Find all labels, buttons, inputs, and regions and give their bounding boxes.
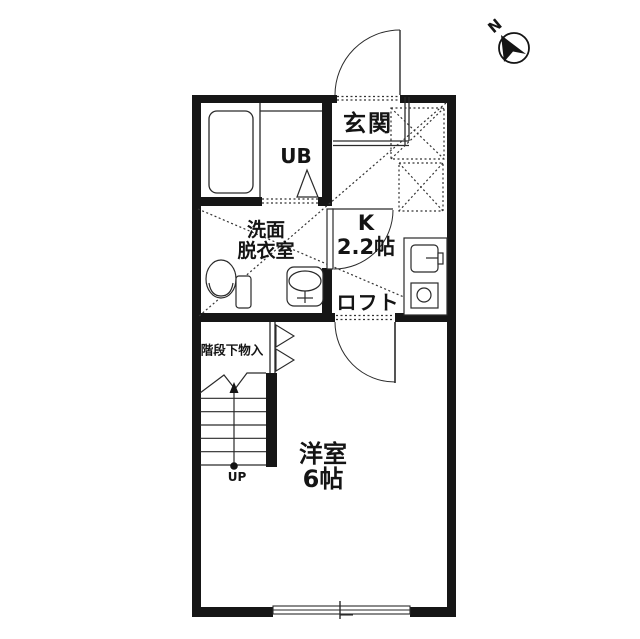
kitchen-size-label: 2.2帖 [337, 235, 395, 259]
wall-ub-bottom [192, 197, 262, 206]
washroom-label-line1: 洗面 [237, 220, 294, 241]
loft-label: ロフト [337, 287, 400, 316]
wall-right [447, 95, 456, 617]
kitchen-label: K 2.2帖 [337, 211, 395, 259]
western-room-size: 6帖 [299, 467, 347, 492]
entrance-threshold [337, 97, 400, 101]
stairs-up-label: UP [228, 470, 247, 484]
stairs [200, 373, 266, 470]
shoe-cabinet-lower [399, 163, 443, 211]
ub-threshold [262, 199, 318, 203]
western-room-name: 洋室 [299, 442, 347, 467]
wall-bottom-left [192, 607, 273, 617]
entrance-label: 玄関 [343, 104, 393, 138]
toilet [206, 260, 251, 308]
closet-door-frame [270, 322, 275, 373]
kitchen-counter [404, 238, 447, 315]
wall-bottom-right [410, 607, 456, 617]
closet-bifold-door [276, 325, 294, 371]
washbasin [287, 267, 323, 306]
north-arrow-icon [499, 33, 529, 63]
unit-bath-label: UB [280, 144, 311, 168]
stairs-treads [200, 398, 266, 465]
ub-folding-door [297, 170, 318, 197]
shoe-cabinet-upper [391, 108, 444, 159]
floor-plan: N 玄関 UB 洗面 脱衣室 K 2.2帖 ロフト 階段下物入 UP 洋室 6帖 [0, 0, 640, 639]
under-stair-storage-label: 階段下物入 [201, 340, 264, 359]
wall-top-left [192, 95, 337, 103]
wall-ub-right [322, 95, 332, 206]
room-door-threshold [336, 316, 394, 320]
sliding-window [273, 601, 410, 619]
stove [411, 283, 438, 308]
room-door [335, 322, 395, 383]
kitchen-type-label: K [337, 211, 395, 235]
wall-middle-left [192, 313, 335, 322]
washroom-label-line2: 脱衣室 [237, 241, 294, 262]
bathtub [209, 111, 253, 193]
washroom-label: 洗面 脱衣室 [237, 220, 294, 262]
western-room-label: 洋室 6帖 [299, 442, 347, 492]
wall-left [192, 95, 201, 617]
doors [276, 30, 400, 383]
wall-stairs-right [266, 373, 277, 467]
entrance-door [335, 30, 400, 95]
stairs-up-arrow [230, 382, 239, 470]
floor-plan-drawing [0, 0, 640, 639]
